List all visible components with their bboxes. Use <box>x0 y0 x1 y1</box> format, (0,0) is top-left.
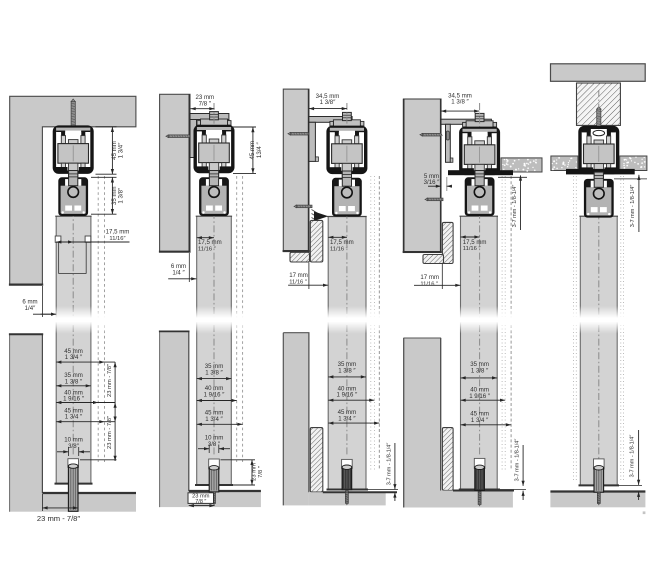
svg-text:7/8 ″: 7/8 ″ <box>195 499 206 505</box>
svg-text:1 3/8″: 1 3/8″ <box>320 99 337 106</box>
svg-text:17,5 mm: 17,5 mm <box>463 239 487 246</box>
svg-text:1 3/8″: 1 3/8″ <box>118 187 125 204</box>
svg-text:1 3/4 ″: 1 3/4 ″ <box>65 354 83 361</box>
svg-text:3-7 mm - 1/8-1/4″: 3-7 mm - 1/8-1/4″ <box>515 439 521 482</box>
svg-text:3/16 ″: 3/16 ″ <box>424 179 441 186</box>
svg-text:3/8″: 3/8″ <box>68 443 79 450</box>
svg-text:13/4 ″: 13/4 ″ <box>256 142 263 159</box>
svg-text:23 mm - 7/8″: 23 mm - 7/8″ <box>107 416 113 449</box>
svg-text:11/16″: 11/16″ <box>109 236 125 242</box>
svg-text:17 mm: 17 mm <box>420 274 439 281</box>
svg-text:1 3/8 ″: 1 3/8 ″ <box>451 99 469 106</box>
svg-text:1 3/8 ″: 1 3/8 ″ <box>65 378 83 385</box>
svg-text:1 9/16 ″: 1 9/16 ″ <box>204 391 226 398</box>
svg-text:11/16 ″: 11/16 ″ <box>289 279 307 285</box>
svg-text:11/16 ″: 11/16 ″ <box>330 246 348 252</box>
svg-text:17 mm: 17 mm <box>289 272 308 279</box>
svg-text:11/16 ″: 11/16 ″ <box>420 281 438 287</box>
svg-text:1 3/4 ″: 1 3/4 ″ <box>205 416 223 423</box>
svg-text:1 3/8 ″: 1 3/8 ″ <box>471 367 489 374</box>
svg-text:23 mm - 7/8″: 23 mm - 7/8″ <box>37 514 81 523</box>
svg-text:7/8 ″: 7/8 ″ <box>258 466 264 478</box>
svg-text:3-7 mm - 1/8-1/4″: 3-7 mm - 1/8-1/4″ <box>630 435 636 478</box>
svg-text:1 3/8 ″: 1 3/8 ″ <box>205 369 223 376</box>
svg-text:11/16 ″: 11/16 ″ <box>463 246 481 252</box>
svg-text:1 3/4 ″: 1 3/4 ″ <box>65 414 83 421</box>
svg-text:1 3/4 ″: 1 3/4 ″ <box>471 417 489 424</box>
svg-text:1 9/16 ″: 1 9/16 ″ <box>63 396 85 403</box>
svg-text:23 mm - 7/8″: 23 mm - 7/8″ <box>107 364 113 397</box>
svg-text:1 9/16 ″: 1 9/16 ″ <box>337 392 359 399</box>
svg-text:23 mm: 23 mm <box>251 463 257 481</box>
svg-text:17,5 mm: 17,5 mm <box>198 239 222 246</box>
svg-text:1 3/4″: 1 3/4″ <box>118 142 125 159</box>
svg-text:1 9/16 ″: 1 9/16 ″ <box>469 393 491 400</box>
svg-text:1/4″: 1/4″ <box>25 305 36 312</box>
svg-text:1 3/4 ″: 1 3/4 ″ <box>338 415 356 422</box>
svg-text:3-7 mm - 1/8-1/4″: 3-7 mm - 1/8-1/4″ <box>386 443 392 486</box>
svg-text:1/4 ″: 1/4 ″ <box>172 269 185 276</box>
svg-text:17,5 mm: 17,5 mm <box>330 239 354 246</box>
svg-text:3-7 mm - 1/8-1/4″: 3-7 mm - 1/8-1/4″ <box>630 185 636 228</box>
svg-text:11/16 ″: 11/16 ″ <box>198 246 216 252</box>
svg-text:17,5 mm: 17,5 mm <box>106 229 130 236</box>
svg-text:3-7 mm - 1/8-1/4″: 3-7 mm - 1/8-1/4″ <box>512 185 518 228</box>
svg-text:7/8 ″: 7/8 ″ <box>199 100 212 107</box>
svg-text:1 3/8 ″: 1 3/8 ″ <box>338 367 356 374</box>
